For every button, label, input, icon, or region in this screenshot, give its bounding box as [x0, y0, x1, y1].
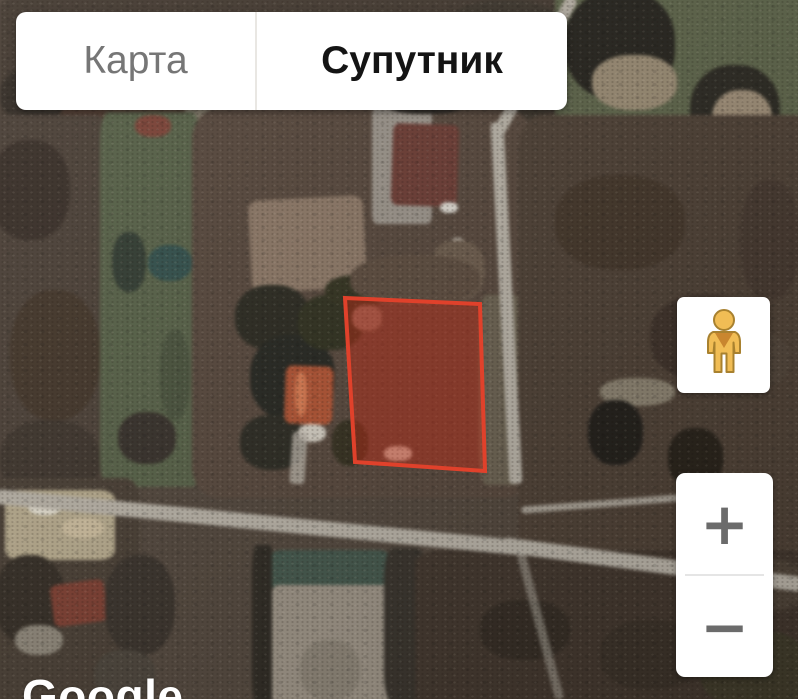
terrain-feature — [105, 555, 175, 655]
terrain-feature — [352, 305, 382, 331]
terrain-feature — [295, 372, 307, 416]
zoom-control: + − — [676, 473, 773, 677]
tab-map[interactable]: Карта — [16, 12, 255, 110]
terrain-feature — [62, 518, 104, 538]
map-viewport[interactable]: Карта Супутник + − Google — [0, 0, 798, 699]
terrain-feature — [112, 232, 146, 292]
terrain-feature — [350, 255, 480, 305]
terrain-feature — [15, 625, 63, 655]
terrain-feature — [135, 115, 171, 137]
terrain-feature — [592, 55, 677, 110]
terrain-feature — [300, 640, 360, 699]
terrain-feature — [332, 420, 368, 466]
zoom-in-button[interactable]: + — [676, 473, 773, 574]
terrain-feature — [384, 446, 412, 461]
street-view-button[interactable] — [677, 297, 770, 393]
terrain-feature — [588, 400, 643, 465]
terrain-feature — [118, 412, 176, 464]
pegman-icon — [701, 309, 747, 382]
terrain-feature — [284, 365, 334, 425]
zoom-out-button[interactable]: − — [676, 576, 773, 677]
terrain-feature — [10, 290, 100, 420]
terrain-feature — [740, 180, 798, 300]
terrain-feature — [49, 578, 108, 627]
terrain-feature — [480, 600, 570, 660]
terrain-feature — [391, 123, 460, 207]
terrain-feature — [148, 245, 192, 281]
terrain-feature — [0, 140, 70, 240]
terrain-feature — [160, 330, 190, 420]
terrain-feature — [252, 545, 274, 699]
map-type-control: Карта Супутник — [16, 12, 567, 110]
google-logo: Google — [22, 669, 183, 699]
terrain-feature — [272, 550, 388, 590]
terrain-feature — [440, 202, 458, 213]
tab-satellite[interactable]: Супутник — [257, 12, 567, 110]
terrain-feature — [555, 175, 685, 270]
